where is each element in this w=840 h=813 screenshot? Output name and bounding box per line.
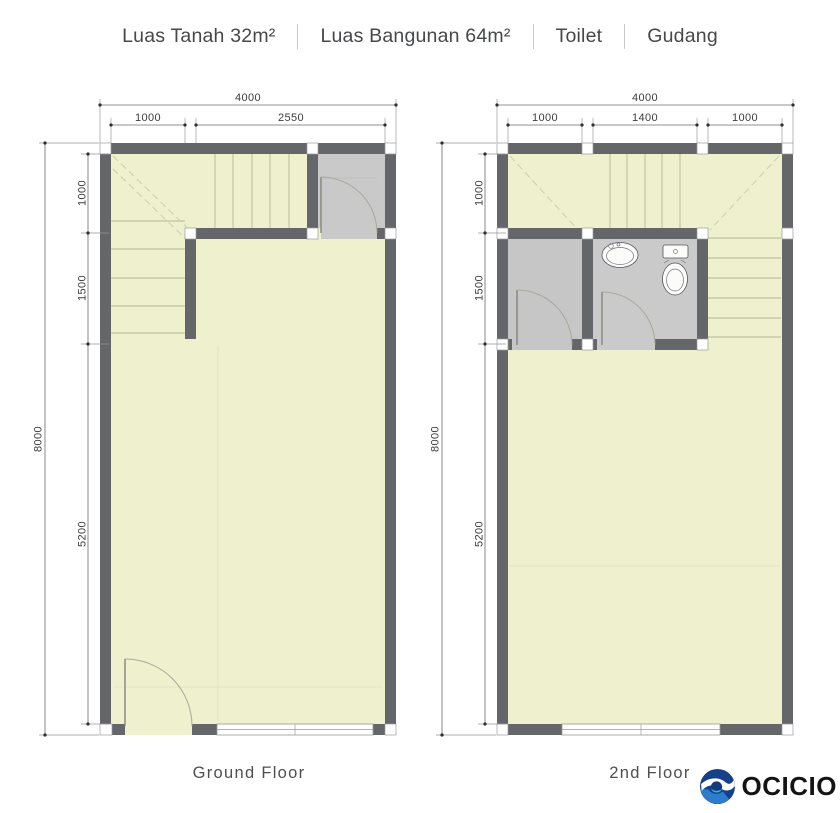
sink-icon (602, 243, 638, 268)
ground-dim-top-seg1: 1000 (135, 112, 161, 124)
second-dim-height-total: 8000 (430, 426, 442, 452)
title-separator (297, 24, 298, 49)
title-gudang: Gudang (647, 25, 718, 48)
ground-floor-plan: 4000 1000 2550 8000 1000 1500 5200 Groun… (25, 88, 410, 788)
ground-dim-top-seg2: 2550 (278, 112, 304, 124)
second-floor-label: 2nd Floor (609, 764, 690, 782)
second-dim-width-total: 4000 (632, 92, 658, 104)
ground-dim-width-total: 4000 (235, 92, 261, 104)
second-dim-left-seg2: 1500 (474, 275, 486, 301)
ground-dim-left-seg2: 1500 (77, 275, 89, 301)
second-dim-left-seg1: 1000 (474, 180, 486, 206)
title-luas-tanah: Luas Tanah 32m² (122, 25, 275, 48)
second-dim-top-seg1: 1000 (532, 112, 558, 124)
title-luas-bangunan: Luas Bangunan 64m² (320, 25, 510, 48)
second-floor-plan: 4000 1000 1400 1000 8000 1000 1500 5200 … (422, 88, 807, 788)
ground-dim-height-total: 8000 (33, 426, 45, 452)
title-separator (533, 24, 534, 49)
ground-floor-label: Ground Floor (193, 764, 306, 782)
second-dim-top-seg3: 1000 (732, 112, 758, 124)
ground-dim-left-seg3: 5200 (77, 521, 89, 547)
second-dim-top-seg2: 1400 (632, 112, 658, 124)
title-toilet: Toilet (556, 25, 603, 48)
toilet-icon (663, 245, 689, 295)
ocicio-logo-icon (699, 768, 736, 805)
title-bar: Luas Tanah 32m² Luas Bangunan 64m² Toile… (0, 24, 840, 49)
floorplan-sheet: Luas Tanah 32m² Luas Bangunan 64m² Toile… (0, 0, 840, 813)
brand-logo: OCICIO (699, 768, 837, 805)
second-window (562, 724, 720, 735)
second-dim-left-seg3: 5200 (474, 521, 486, 547)
logo-wordmark: OCICIO (742, 771, 837, 802)
title-separator (624, 24, 625, 49)
ground-window (217, 724, 373, 735)
ground-dim-left-seg1: 1000 (77, 180, 89, 206)
